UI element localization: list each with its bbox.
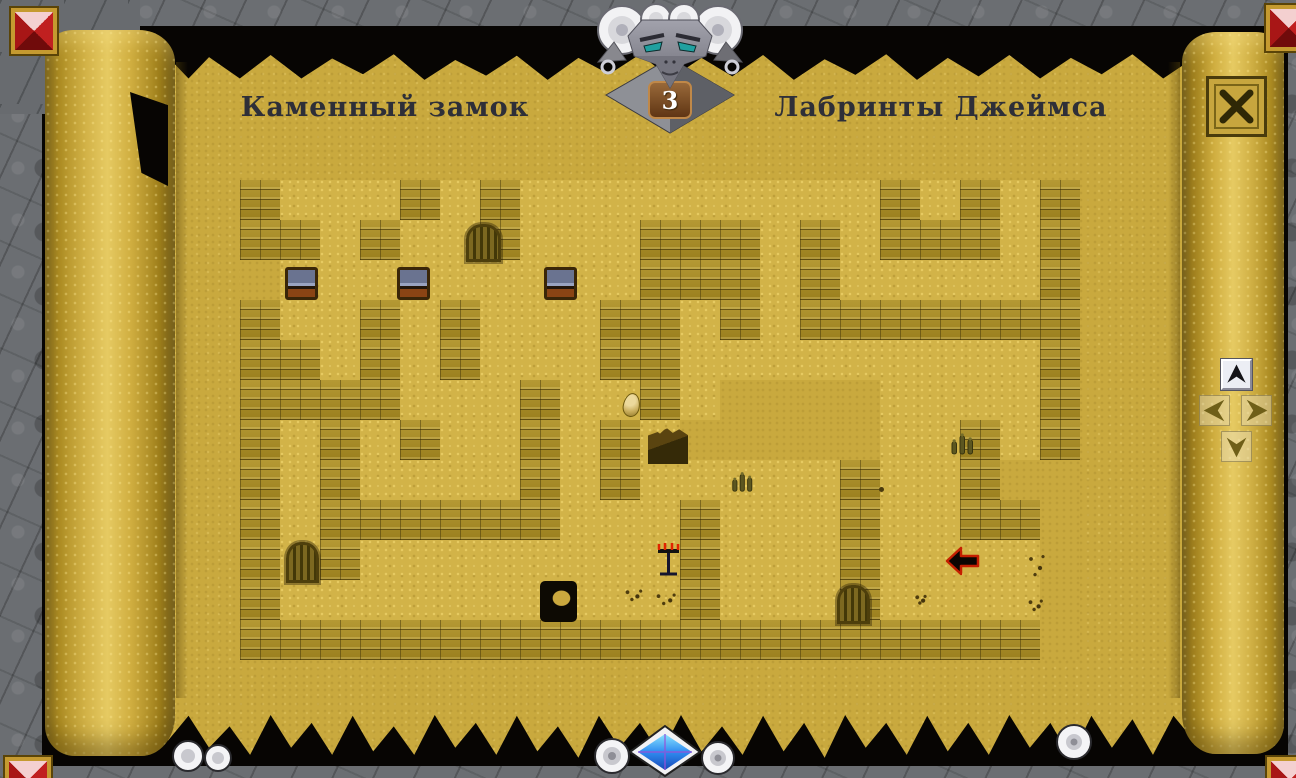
maze-wall-tile [640,300,680,340]
map-item-candelabra [655,541,682,579]
map-item-dot [879,487,884,492]
maze-wall-tile [520,460,560,500]
parchment-gap-tile [1040,460,1080,500]
map-item-bones [652,592,678,606]
location-title-right: Лабринты Джеймса [766,92,1116,123]
maze-wall-tile [440,300,480,340]
map-item-cactus [729,468,756,494]
maze-wall-tile [840,460,880,500]
left-arrow-icon [1200,396,1229,425]
parchment-gap-tile [1040,580,1080,620]
parchment-gap-tile [720,420,760,460]
maze-wall-tile [600,620,640,660]
parchment-gap-tile [720,380,760,420]
level-number: 3 [649,84,691,118]
maze-wall-tile [1040,260,1080,300]
maze-wall-tile [920,620,960,660]
maze-wall-tile [760,620,800,660]
scroll-fold-shadow-left [176,62,188,698]
maze-wall-tile [400,500,440,540]
scroll-map-left-button[interactable] [1199,395,1230,426]
maze-wall-tile [1000,300,1040,340]
maze-wall-tile [320,420,360,460]
maze-wall-tile [720,620,760,660]
maze-wall-tile [280,380,320,420]
maze-wall-tile [240,420,280,460]
maze-wall-tile [880,300,920,340]
maze-wall-tile [880,220,920,260]
location-title-left: Каменный замок [235,92,535,123]
parchment-gap-tile [760,420,800,460]
maze-wall-tile [680,260,720,300]
maze-wall-tile [960,180,1000,220]
map-item-bones [914,594,927,605]
maze-wall-tile [1000,620,1040,660]
close-button[interactable] [1206,76,1267,137]
scroll-fold-shadow-right [1168,62,1180,698]
maze-wall-tile [960,460,1000,500]
map-item-bones [1026,550,1046,580]
maze-wall-tile [240,380,280,420]
maze-wall-tile [400,180,440,220]
maze-wall-tile [1040,300,1080,340]
maze-wall-tile [600,300,640,340]
maze-wall-tile [600,340,640,380]
maze-wall-tile [240,460,280,500]
corner-gem-bottom-left [5,757,51,778]
map-item-chest [544,267,577,300]
maze-wall-tile [240,300,280,340]
map-item-chest [397,267,430,300]
demon-head-icon [592,0,748,140]
map-item-egg [621,392,642,419]
bottom-curl-ornament-icon [168,726,240,776]
maze-wall-tile [640,260,680,300]
parchment-gap-tile [840,380,880,420]
map-item-cactus [949,429,976,457]
maze-wall-tile [1040,340,1080,380]
parchment-gap-tile [1040,500,1080,540]
maze-wall-tile [680,540,720,580]
maze-wall-tile [680,620,720,660]
maze-wall-tile [960,300,1000,340]
bottom-gem-ornament-icon [590,724,740,778]
maze-wall-tile [640,220,680,260]
maze-wall-tile [240,340,280,380]
scroll-map-up-button[interactable] [1221,359,1252,390]
map-item-gate [286,542,319,583]
maze-wall-tile [960,620,1000,660]
maze-wall-tile [240,220,280,260]
maze-wall-tile [320,620,360,660]
maze-wall-tile [880,620,920,660]
scroll-map-right-button[interactable] [1241,395,1272,426]
maze-wall-tile [480,620,520,660]
maze-wall-tile [600,460,640,500]
up-arrow-icon [1223,361,1250,388]
map-item-chest [285,267,318,300]
maze-wall-tile [880,180,920,220]
scroll-map-down-button[interactable] [1221,431,1252,462]
maze-wall-tile [240,500,280,540]
maze-wall-tile [320,380,360,420]
parchment-gap-tile [1040,620,1080,660]
parchment-gap-tile [1040,540,1080,580]
maze-wall-tile [1040,420,1080,460]
maze-wall-tile [440,620,480,660]
parchment-gap-tile [760,380,800,420]
map-item-player-arrow [945,546,980,576]
maze-wall-tile [360,220,400,260]
map-item-pit [540,581,577,622]
maze-wall-tile [840,540,880,580]
corner-gem-bottom-right [1267,757,1296,778]
maze-wall-tile [800,260,840,300]
maze-wall-tile [520,500,560,540]
maze-wall-tile [360,620,400,660]
maze-wall-tile [800,620,840,660]
maze-wall-tile [360,380,400,420]
bottom-curl-ornament-icon [1050,710,1098,764]
maze-wall-tile [720,220,760,260]
right-arrow-icon [1242,396,1271,425]
maze-wall-tile [800,220,840,260]
maze-wall-tile [800,300,840,340]
maze-wall-tile [280,620,320,660]
maze-wall-tile [400,420,440,460]
parchment-gap-tile [800,380,840,420]
maze-wall-tile [920,220,960,260]
maze-wall-tile [1040,180,1080,220]
maze-wall-tile [240,540,280,580]
maze-map [240,180,1080,660]
maze-wall-tile [1040,220,1080,260]
maze-wall-tile [240,180,280,220]
maze-wall-tile [280,220,320,260]
parchment-gap-tile [840,420,880,460]
maze-wall-tile [640,340,680,380]
maze-wall-tile [440,340,480,380]
maze-wall-tile [720,260,760,300]
parchment-gap-tile [240,260,280,300]
maze-wall-tile [520,620,560,660]
maze-wall-tile [440,500,480,540]
maze-wall-tile [600,420,640,460]
maze-wall-tile [960,220,1000,260]
maze-wall-tile [320,540,360,580]
down-arrow-icon [1222,432,1251,461]
maze-wall-tile [680,220,720,260]
maze-wall-tile [1000,500,1040,540]
map-item-rubble [648,427,688,464]
maze-wall-tile [360,340,400,380]
maze-wall-tile [960,500,1000,540]
maze-wall-tile [920,300,960,340]
maze-wall-tile [360,500,400,540]
maze-wall-tile [480,500,520,540]
map-item-gate [837,585,870,624]
maze-wall-tile [240,580,280,620]
map-item-bones [1026,598,1044,612]
maze-wall-tile [320,500,360,540]
map-screen: Каменный замок Лабринты Джеймса [0,0,1296,778]
maze-wall-tile [320,460,360,500]
maze-wall-tile [840,500,880,540]
maze-wall-tile [840,300,880,340]
corner-gem-top-right [1266,5,1296,51]
corner-gem-top-left [11,8,57,54]
maze-wall-tile [240,620,280,660]
close-icon [1206,76,1267,137]
maze-wall-tile [680,500,720,540]
maze-wall-tile [360,300,400,340]
maze-wall-tile [480,180,520,220]
maze-wall-tile [560,620,600,660]
maze-wall-tile [720,300,760,340]
maze-wall-tile [520,420,560,460]
maze-wall-tile [520,380,560,420]
parchment-gap-tile [800,420,840,460]
maze-wall-tile [1040,380,1080,420]
maze-wall-tile [840,620,880,660]
maze-wall-tile [640,380,680,420]
maze-wall-tile [680,580,720,620]
maze-wall-tile [400,620,440,660]
map-item-bones [622,588,644,602]
maze-wall-tile [640,620,680,660]
map-item-gate [466,224,501,262]
scroll-roll-right [1182,32,1284,754]
maze-wall-tile [280,340,320,380]
parchment-gap-tile [1000,460,1040,500]
